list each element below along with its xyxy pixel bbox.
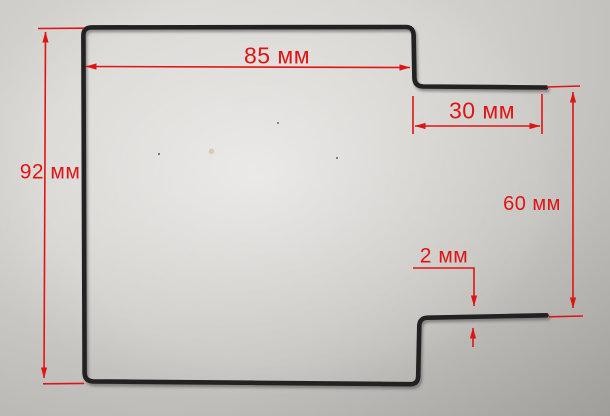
dim-label-right-height: 60 мм xyxy=(503,194,561,214)
leader-line xyxy=(413,268,474,306)
dimension-92mm xyxy=(38,28,84,384)
photo-canvas: 85 мм 30 мм 92 мм 60 мм 2 мм xyxy=(0,0,610,416)
dimension-2mm xyxy=(413,268,474,347)
dim-label-top-arm: 30 мм xyxy=(449,100,515,123)
extension-line xyxy=(549,316,583,317)
extension-line xyxy=(547,86,580,87)
dim-label-wire-diameter: 2 мм xyxy=(420,246,468,267)
dimension-lines xyxy=(38,28,583,384)
wire-element xyxy=(83,27,546,384)
dim-label-top-width: 85 мм xyxy=(244,45,310,68)
dim-label-left-height: 92 мм xyxy=(20,162,81,183)
dimension-arrow-line xyxy=(44,32,46,378)
